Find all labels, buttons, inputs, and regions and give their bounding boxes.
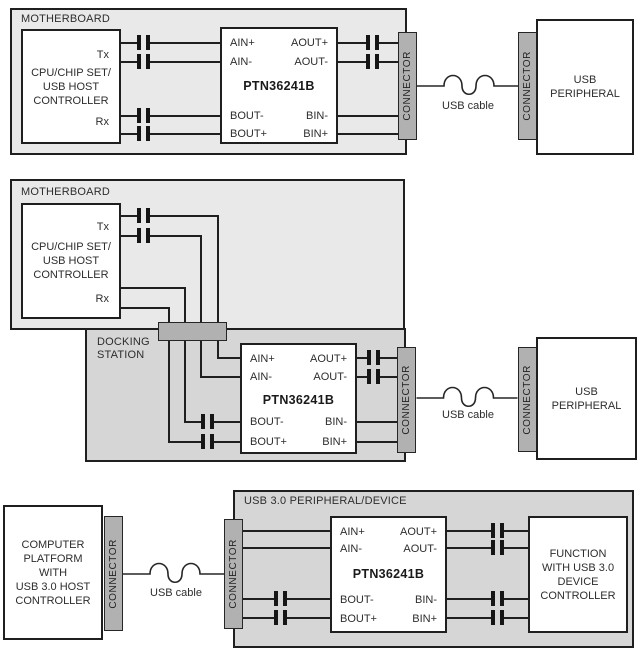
wire: [357, 421, 399, 423]
wire: [121, 235, 201, 237]
capacitor-icon: [137, 208, 150, 223]
pin-bin-plus: BIN+: [303, 128, 328, 141]
capacitor-icon: [137, 54, 150, 69]
pin-bout-plus: BOUT+: [340, 613, 377, 626]
capacitor-icon: [137, 35, 150, 50]
capacitor-icon: [491, 610, 504, 625]
d2-connector-left: CONNECTOR: [397, 347, 416, 453]
capacitor-icon: [367, 369, 380, 384]
capacitor-icon: [491, 591, 504, 606]
wire: [357, 441, 399, 443]
d2-connector-right: CONNECTOR: [518, 347, 537, 452]
d2-usb-cable-label: USB cable: [428, 409, 508, 421]
d3-board-label: USB 3.0 PERIPHERAL/DEVICE: [244, 495, 407, 508]
pin-ain-minus: AIN-: [250, 371, 272, 384]
wire: [243, 598, 331, 600]
pin-bout-plus: BOUT+: [250, 436, 287, 449]
capacitor-icon: [366, 35, 379, 50]
pin-bin-plus: BIN+: [322, 436, 347, 449]
wire: [121, 115, 221, 117]
wire: [447, 530, 529, 532]
pin-aout-plus: AOUT+: [291, 37, 328, 50]
wire: [200, 235, 202, 378]
pin-bin-plus: BIN+: [412, 613, 437, 626]
wire: [200, 376, 242, 378]
d3-host-label: COMPUTER PLATFORM WITH USB 3.0 HOST CONT…: [15, 538, 90, 608]
pin-aout-minus: AOUT-: [294, 56, 328, 69]
pin-ain-plus: AIN+: [340, 526, 365, 539]
pin-ain-minus: AIN-: [340, 543, 362, 556]
wire: [184, 287, 186, 423]
d1-usb-peripheral-box: USB PERIPHERAL: [536, 19, 634, 155]
d2-ptn36241b-chip: AIN+ AIN- BOUT- BOUT+ AOUT+ AOUT- BIN- B…: [240, 343, 357, 454]
pin-bin-minus: BIN-: [306, 110, 328, 123]
capacitor-icon: [367, 350, 380, 365]
d3-connector-right: CONNECTOR: [224, 519, 243, 629]
capacitor-icon: [366, 54, 379, 69]
wire: [337, 133, 400, 135]
d2-host-controller-box: CPU/CHIP SET/ USB HOST CONTROLLER Tx Rx: [21, 203, 121, 319]
pin-bin-minus: BIN-: [325, 416, 347, 429]
capacitor-icon: [137, 108, 150, 123]
connector-label: CONNECTOR: [522, 51, 533, 121]
capacitor-icon: [491, 523, 504, 538]
d1-ptn36241b-chip: AIN+ AIN- BOUT- BOUT+ AOUT+ AOUT- BIN- B…: [220, 27, 338, 144]
wire: [243, 547, 331, 549]
d2-host-label: CPU/CHIP SET/ USB HOST CONTROLLER: [31, 240, 111, 282]
d2-peripheral-label: USB PERIPHERAL: [552, 385, 622, 413]
pin-aout-plus: AOUT+: [310, 353, 347, 366]
wire: [121, 215, 218, 217]
wire: [243, 617, 331, 619]
wire: [121, 61, 221, 63]
chip-name: PTN36241B: [242, 393, 355, 407]
pin-bout-minus: BOUT-: [340, 594, 374, 607]
d1-peripheral-label: USB PERIPHERAL: [550, 73, 620, 101]
wire: [447, 617, 529, 619]
d1-connector-right: CONNECTOR: [518, 32, 537, 140]
chip-name: PTN36241B: [222, 79, 336, 93]
pin-aout-plus: AOUT+: [400, 526, 437, 539]
pin-aout-minus: AOUT-: [313, 371, 347, 384]
d1-connector-left: CONNECTOR: [398, 32, 417, 140]
connector-label: CONNECTOR: [228, 539, 239, 609]
wire: [121, 287, 185, 289]
capacitor-icon: [491, 540, 504, 555]
connector-label: CONNECTOR: [522, 365, 533, 435]
usb-cable-squiggle: [417, 70, 518, 102]
tx-label: Tx: [97, 48, 109, 62]
rx-label: Rx: [96, 115, 109, 129]
wire: [447, 547, 529, 549]
rx-label: Rx: [96, 292, 109, 306]
pin-aout-minus: AOUT-: [403, 543, 437, 556]
d3-usb-cable-label: USB cable: [136, 587, 216, 599]
wire: [217, 357, 242, 359]
connector-label: CONNECTOR: [401, 365, 412, 435]
wire: [447, 598, 529, 600]
capacitor-icon: [137, 126, 150, 141]
pin-ain-minus: AIN-: [230, 56, 252, 69]
wire: [121, 42, 221, 44]
connector-label: CONNECTOR: [108, 539, 119, 609]
d3-connector-left: CONNECTOR: [104, 516, 123, 631]
capacitor-icon: [274, 610, 287, 625]
d2-board-to-dock-connector: [158, 322, 227, 341]
d1-board-label: MOTHERBOARD: [21, 13, 110, 26]
connector-label: CONNECTOR: [402, 51, 413, 121]
pin-bout-plus: BOUT+: [230, 128, 267, 141]
pin-bout-minus: BOUT-: [250, 416, 284, 429]
wire: [337, 115, 400, 117]
chip-name: PTN36241B: [332, 567, 445, 581]
d3-computer-platform-box: COMPUTER PLATFORM WITH USB 3.0 HOST CONT…: [3, 505, 103, 640]
pin-ain-plus: AIN+: [250, 353, 275, 366]
wire: [121, 133, 221, 135]
capacitor-icon: [137, 228, 150, 243]
d1-host-label: CPU/CHIP SET/ USB HOST CONTROLLER: [31, 66, 111, 108]
d2-docking-label: DOCKING STATION: [97, 336, 150, 362]
d2-board-label: MOTHERBOARD: [21, 186, 110, 199]
wire: [121, 307, 169, 309]
wire: [243, 530, 331, 532]
capacitor-icon: [201, 434, 214, 449]
d1-usb-cable-label: USB cable: [428, 100, 508, 112]
usb-cable-squiggle: [123, 558, 224, 590]
tx-label: Tx: [97, 220, 109, 234]
d1-host-controller-box: CPU/CHIP SET/ USB HOST CONTROLLER Tx Rx: [21, 29, 121, 144]
capacitor-icon: [274, 591, 287, 606]
diagram-canvas: MOTHERBOARD CPU/CHIP SET/ USB HOST CONTR…: [0, 0, 640, 654]
pin-bout-minus: BOUT-: [230, 110, 264, 123]
pin-bin-minus: BIN-: [415, 594, 437, 607]
pin-ain-plus: AIN+: [230, 37, 255, 50]
d3-function-controller-box: FUNCTION WITH USB 3.0 DEVICE CONTROLLER: [528, 516, 628, 633]
d2-usb-peripheral-box: USB PERIPHERAL: [536, 337, 637, 460]
d3-ptn36241b-chip: AIN+ AIN- BOUT- BOUT+ AOUT+ AOUT- BIN- B…: [330, 516, 447, 633]
capacitor-icon: [201, 414, 214, 429]
d3-function-label: FUNCTION WITH USB 3.0 DEVICE CONTROLLER: [540, 547, 615, 603]
